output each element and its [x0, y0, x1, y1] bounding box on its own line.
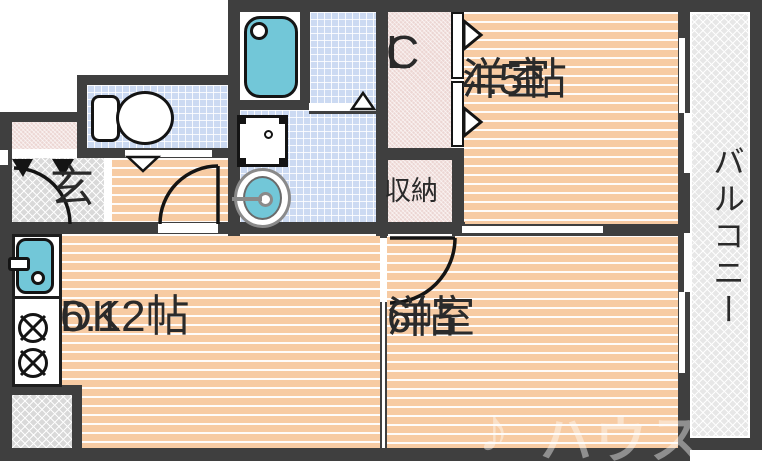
watermark-text: ハウス — [540, 398, 705, 461]
entry-door-opening — [0, 150, 8, 165]
washer-drain — [264, 130, 273, 139]
hallway-floor — [112, 158, 228, 222]
wall-porch-top — [0, 112, 80, 122]
watermark-logo-icon: ♪ — [478, 392, 510, 461]
toilet-bowl — [116, 91, 174, 145]
wall-balcony-right — [750, 0, 762, 450]
sliding-door-rooms-opening — [462, 226, 603, 233]
service-area-floor — [12, 395, 72, 448]
wall-closet-divider — [386, 148, 452, 160]
wall-toilet-top — [77, 75, 238, 85]
partition-dk-west6-upper — [380, 234, 387, 238]
kitchen-counter-divider — [12, 296, 62, 299]
toilet-door-opening — [125, 150, 212, 157]
washer-bolt-tr — [279, 117, 286, 124]
room-size: 6帖 — [387, 293, 455, 342]
room-size: 4.5帖 — [462, 55, 567, 104]
wall-bath-bottom — [240, 100, 310, 110]
balcony-label: バルコニー — [698, 132, 744, 342]
wall-bath-right — [300, 12, 310, 110]
bathtub-faucet — [250, 22, 268, 40]
kitchen-faucet — [8, 257, 30, 271]
window-6-sash-b — [679, 292, 685, 373]
window-45-sash-a — [679, 38, 685, 113]
window-45-sash-b — [684, 113, 690, 173]
stove-burner-1 — [18, 313, 48, 343]
kitchen-sink-drain — [31, 271, 45, 285]
stove-burner-2 — [18, 348, 48, 378]
hallway-dk-door-opening — [158, 223, 218, 233]
closet-letter-l: L — [386, 28, 412, 76]
wall-service-right — [72, 385, 82, 461]
wall-bath-partition-line — [309, 111, 376, 114]
washer-bolt-bl — [239, 158, 246, 165]
wall-main-horizontal — [0, 222, 465, 234]
western-room-45-floor — [464, 12, 678, 225]
washer-bolt-tl — [239, 117, 246, 124]
washer-bolt-br — [279, 158, 286, 165]
entrance-hall-step — [104, 158, 112, 222]
floor-plan: 洋室 4.5帖 洋室 6帖 DK 6.12帖 C L 収納 玄 バルコニー ♪ … — [0, 0, 765, 461]
room-size: 6.12帖 — [60, 292, 190, 341]
partition-dk-west6 — [380, 302, 387, 448]
wall-storage-right — [452, 148, 464, 236]
window-6-sash-a — [684, 233, 690, 292]
porch-floor — [12, 122, 77, 149]
wash-basin-drain — [258, 192, 273, 207]
bath-door-opening — [309, 103, 372, 111]
